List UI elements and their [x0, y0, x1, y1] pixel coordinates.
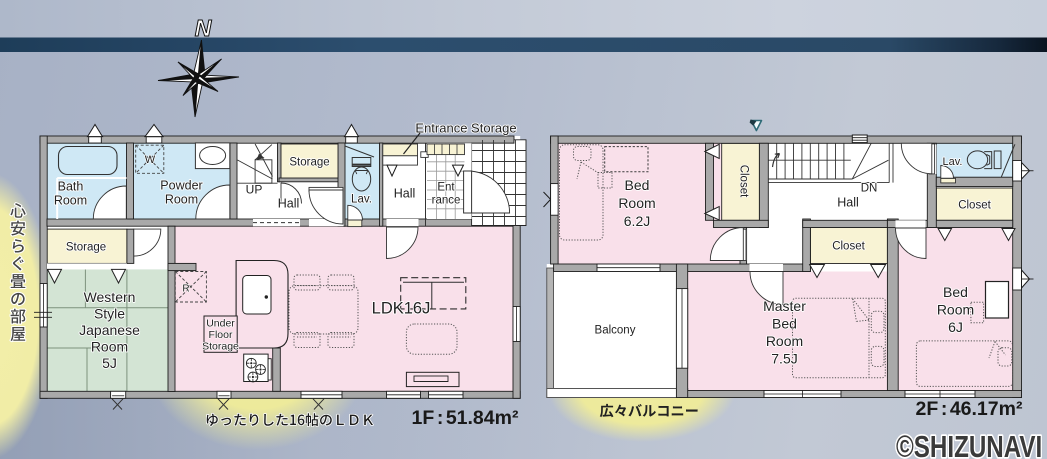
svg-text:6.2J: 6.2J: [624, 213, 650, 229]
svg-text:Bath: Bath: [58, 180, 84, 194]
svg-text:DN: DN: [861, 183, 878, 195]
svg-text:Balcony: Balcony: [595, 325, 636, 337]
svg-text:Room: Room: [937, 302, 974, 318]
svg-text:Storage: Storage: [202, 341, 239, 353]
svg-text:Hall: Hall: [837, 196, 859, 210]
svg-text:Bed: Bed: [625, 177, 650, 193]
svg-text:Room: Room: [618, 195, 655, 211]
svg-text:Closet: Closet: [832, 241, 865, 253]
svg-text:7.5J: 7.5J: [771, 351, 797, 367]
svg-text:Hall: Hall: [394, 187, 416, 201]
svg-text:R: R: [182, 284, 189, 295]
svg-text:Style: Style: [94, 306, 125, 322]
svg-text:Closet: Closet: [958, 200, 991, 212]
svg-text:UP: UP: [246, 183, 263, 197]
svg-text:Room: Room: [766, 333, 803, 349]
svg-text:©SHIZUNAVI: ©SHIZUNAVI: [896, 429, 1042, 459]
svg-text:Lav.: Lav.: [351, 194, 372, 206]
svg-text:rance: rance: [432, 195, 461, 207]
svg-text:1F:51.84m²: 1F:51.84m²: [412, 407, 519, 429]
svg-text:Closet: Closet: [738, 165, 750, 198]
svg-text:Bed: Bed: [772, 316, 797, 332]
svg-text:Floor: Floor: [209, 329, 233, 341]
svg-text:Under: Under: [206, 318, 235, 330]
svg-text:N: N: [195, 15, 212, 41]
svg-text:Hall: Hall: [278, 197, 300, 211]
svg-text:Lav.: Lav.: [943, 156, 963, 168]
svg-text:Powder: Powder: [160, 179, 202, 193]
svg-text:Storage: Storage: [66, 242, 106, 254]
svg-text:6J: 6J: [948, 319, 963, 335]
svg-text:W: W: [145, 154, 156, 166]
svg-text:Master: Master: [763, 298, 806, 314]
svg-text:Western: Western: [84, 289, 136, 305]
svg-text:Room: Room: [91, 339, 128, 355]
svg-text:Room: Room: [165, 193, 198, 207]
svg-text:Japanese: Japanese: [79, 322, 140, 338]
svg-text:Entrance Storage: Entrance Storage: [415, 121, 516, 136]
svg-text:2F:46.17m²: 2F:46.17m²: [916, 398, 1023, 420]
svg-text:LDK16J: LDK16J: [372, 300, 431, 318]
svg-text:Room: Room: [54, 194, 87, 208]
svg-text:Storage: Storage: [289, 157, 329, 169]
svg-text:Ent: Ent: [437, 182, 455, 194]
svg-text:5J: 5J: [102, 355, 117, 371]
svg-text:Bed: Bed: [943, 284, 968, 300]
